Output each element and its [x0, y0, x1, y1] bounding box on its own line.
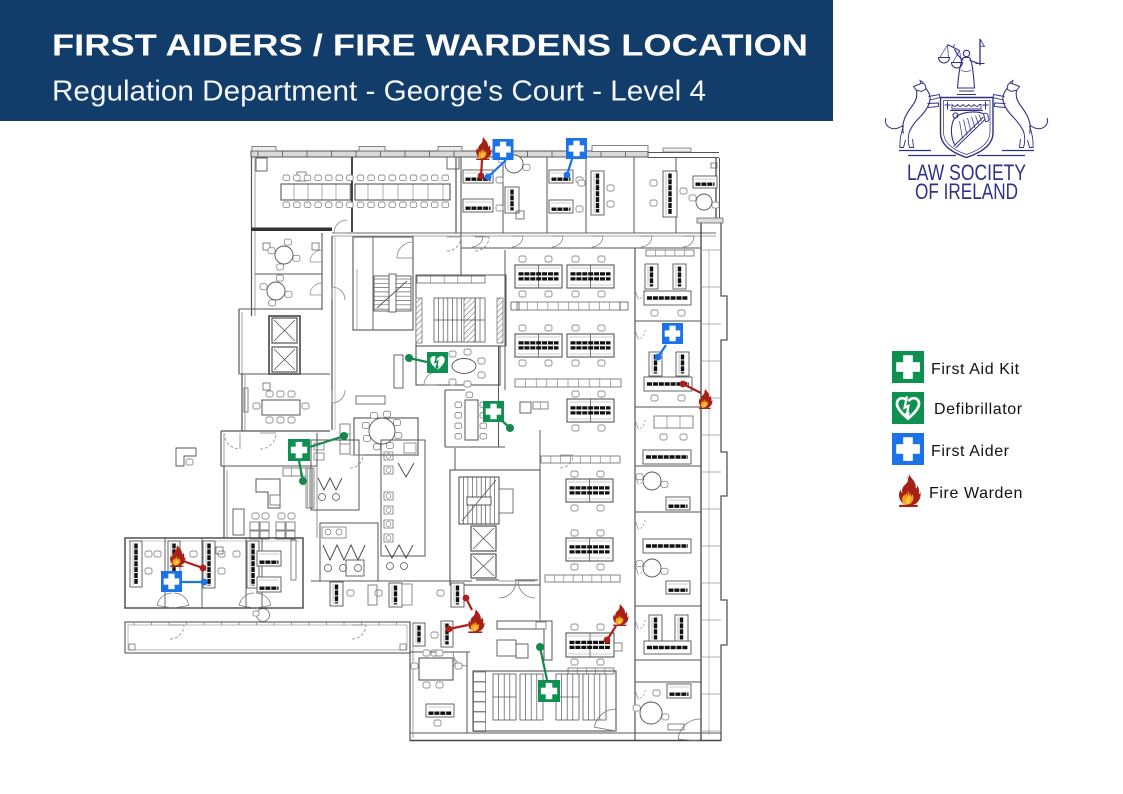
svg-text:Defibrillator: Defibrillator	[934, 401, 1023, 418]
svg-text:Fire Warden: Fire Warden	[929, 485, 1023, 502]
svg-text:Regulation Department - George: Regulation Department - George's Court -…	[52, 76, 706, 108]
svg-text:FIRST AIDERS / FIRE WARDENS LO: FIRST AIDERS / FIRE WARDENS LOCATION	[52, 29, 808, 63]
svg-text:OF IRELAND: OF IRELAND	[915, 179, 1018, 204]
svg-text:First Aider: First Aider	[931, 443, 1010, 460]
svg-text:First Aid Kit: First Aid Kit	[931, 361, 1020, 378]
